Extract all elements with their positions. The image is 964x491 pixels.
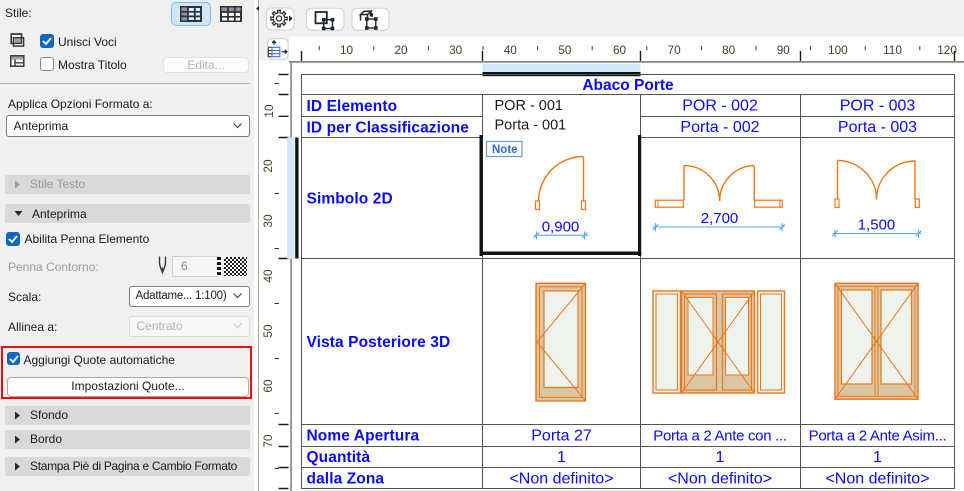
svg-text:Simbolo 2D: Simbolo 2D [307, 191, 393, 208]
svg-text:50: 50 [261, 324, 275, 338]
svg-text:POR - 003: POR - 003 [840, 98, 916, 115]
svg-text:1: 1 [716, 449, 725, 466]
svg-text:ID per Classificazione: ID per Classificazione [307, 120, 470, 137]
svg-text:2,700: 2,700 [701, 210, 739, 227]
svg-text:Abaco Porte: Abaco Porte [582, 77, 674, 94]
svg-text:70: 70 [668, 43, 682, 57]
svg-text:Porta - 001: Porta - 001 [495, 118, 567, 134]
svg-text:10: 10 [340, 43, 354, 57]
svg-text:1: 1 [873, 449, 882, 466]
svg-text:<Non definito>: <Non definito> [825, 471, 929, 488]
svg-text:Porta - 003: Porta - 003 [838, 119, 917, 136]
svg-text:1,500: 1,500 [858, 217, 896, 234]
svg-text:70: 70 [261, 434, 275, 448]
svg-text:110: 110 [883, 43, 902, 57]
svg-text:<Non definito>: <Non definito> [509, 471, 613, 488]
svg-text:POR - 002: POR - 002 [682, 98, 758, 115]
svg-text:Porta 27: Porta 27 [531, 428, 592, 445]
svg-text:dalla Zona: dalla Zona [307, 471, 385, 488]
svg-text:20: 20 [394, 43, 408, 57]
svg-text:<Non definito>: <Non definito> [668, 471, 772, 488]
svg-text:120: 120 [937, 43, 957, 57]
svg-text:ID Elemento: ID Elemento [307, 98, 398, 115]
svg-text:10: 10 [262, 104, 276, 118]
svg-text:Nome Apertura: Nome Apertura [307, 428, 420, 445]
svg-text:Vista Posteriore 3D: Vista Posteriore 3D [307, 334, 451, 351]
svg-text:POR - 001: POR - 001 [495, 98, 564, 114]
svg-text:Quantità: Quantità [307, 449, 371, 466]
svg-text:90: 90 [777, 43, 791, 57]
svg-text:20: 20 [261, 159, 275, 173]
svg-text:60: 60 [613, 43, 627, 57]
svg-text:40: 40 [261, 269, 275, 283]
svg-text:Porta - 002: Porta - 002 [680, 119, 759, 136]
svg-text:Note: Note [492, 144, 518, 156]
svg-text:40: 40 [504, 43, 518, 57]
svg-text:Porta a 2 Ante Asim...: Porta a 2 Ante Asim... [809, 428, 947, 445]
svg-text:Porta a 2 Ante con ...: Porta a 2 Ante con ... [653, 428, 787, 445]
svg-text:80: 80 [722, 43, 736, 57]
svg-text:0,900: 0,900 [542, 219, 580, 236]
svg-text:100: 100 [828, 43, 848, 57]
svg-text:30: 30 [261, 214, 275, 228]
svg-text:1: 1 [557, 449, 566, 466]
svg-text:30: 30 [449, 43, 463, 57]
svg-text:60: 60 [261, 379, 275, 393]
svg-text:50: 50 [558, 43, 572, 57]
